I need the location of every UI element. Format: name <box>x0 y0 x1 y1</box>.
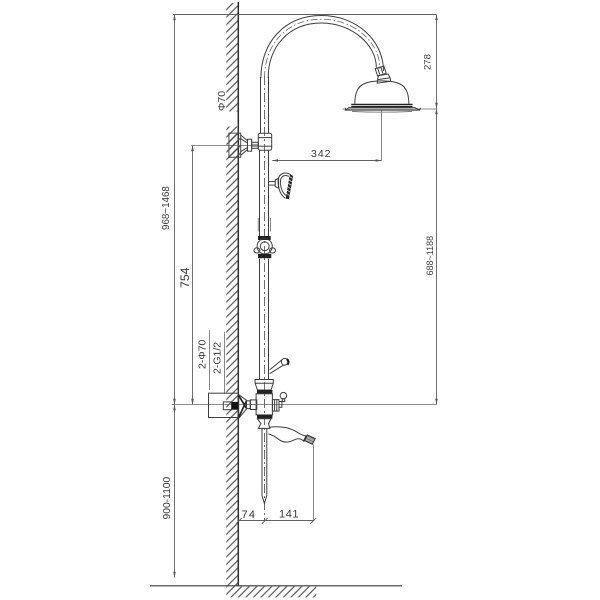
svg-text:900-1100: 900-1100 <box>162 476 173 519</box>
svg-text:278: 278 <box>423 54 434 70</box>
svg-text:968~1468: 968~1468 <box>161 186 172 230</box>
svg-text:754: 754 <box>178 267 192 288</box>
svg-text:141: 141 <box>279 509 299 521</box>
svg-text:74: 74 <box>242 509 257 521</box>
svg-text:342: 342 <box>311 148 332 160</box>
svg-text:688~1188: 688~1188 <box>425 236 435 276</box>
svg-text:Φ70: Φ70 <box>216 91 228 111</box>
svg-text:2-Φ70: 2-Φ70 <box>197 339 209 369</box>
svg-text:2-G1/2: 2-G1/2 <box>212 342 224 374</box>
